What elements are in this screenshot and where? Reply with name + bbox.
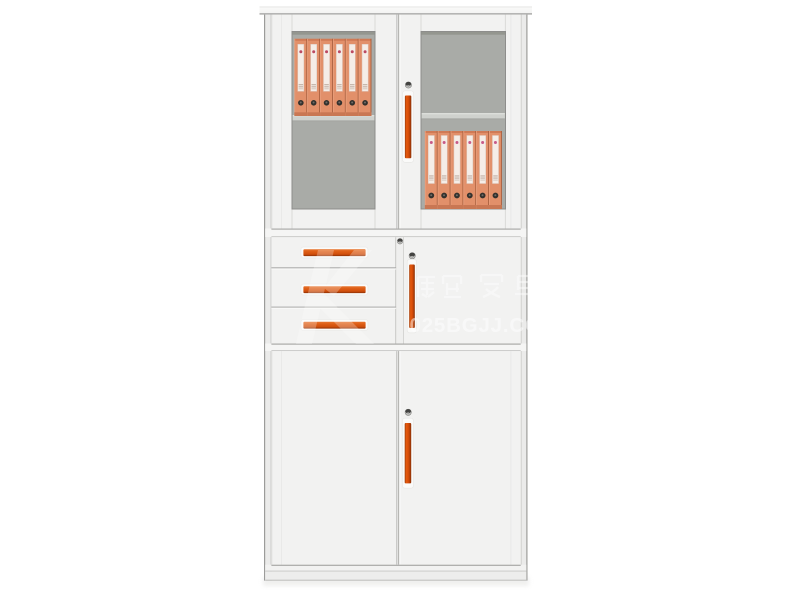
svg-text:025BGJJ.COM: 025BGJJ.COM xyxy=(410,314,560,337)
